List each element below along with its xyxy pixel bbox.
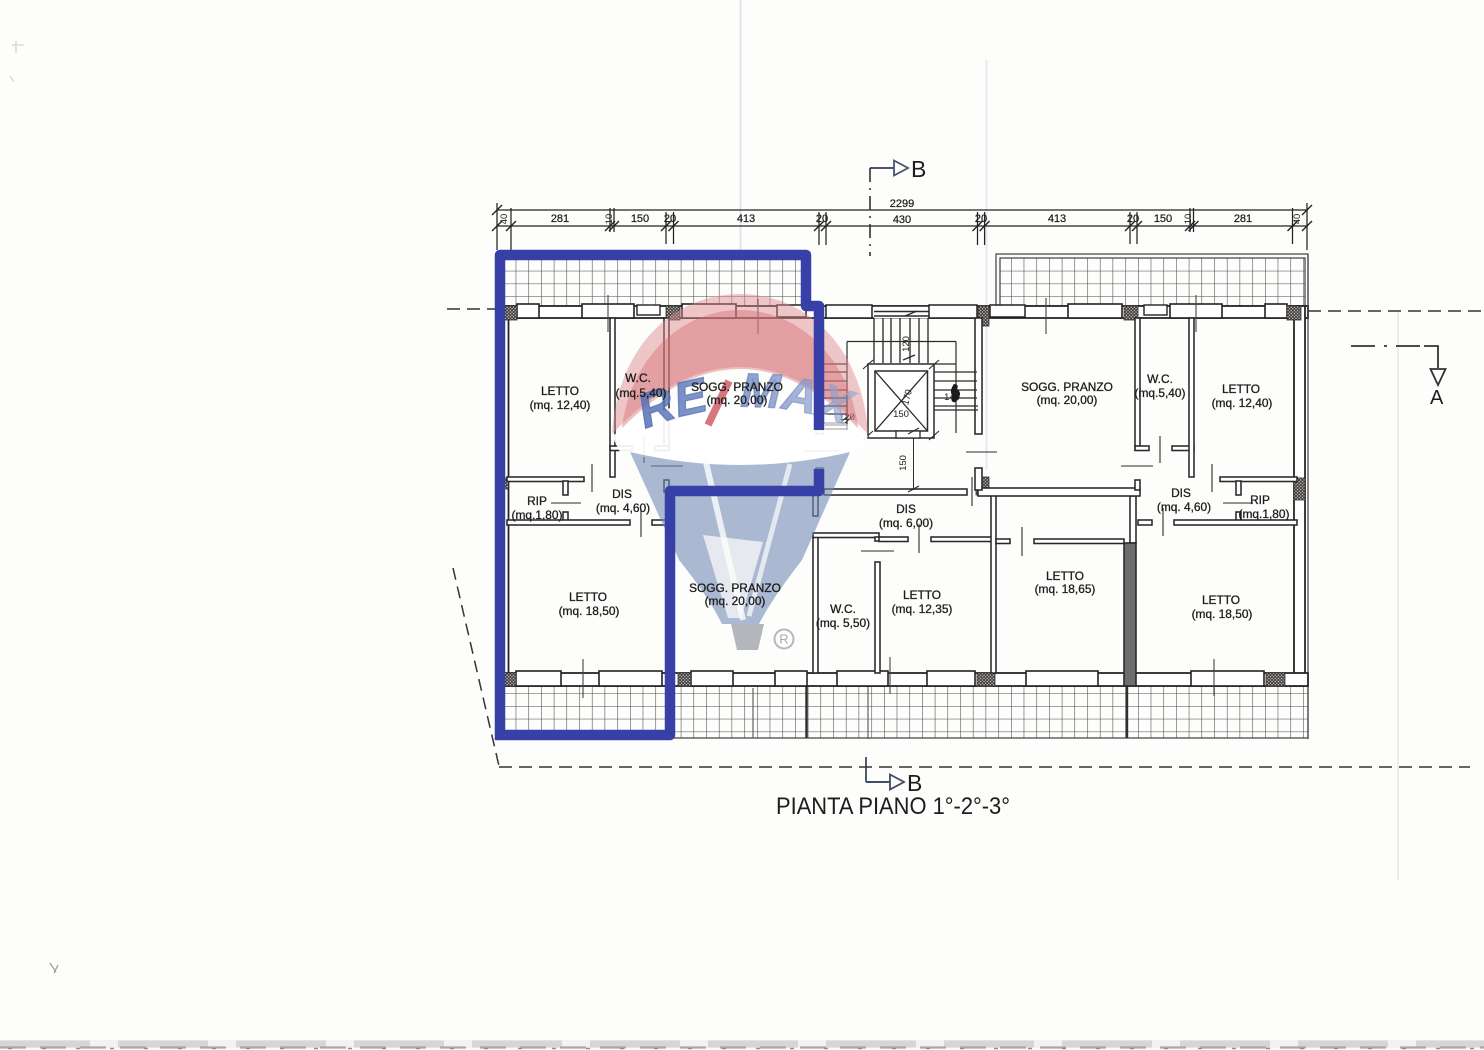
svg-text:(mq.1,80): (mq.1,80) [1239,507,1290,521]
svg-text:R: R [779,632,788,647]
svg-text:SOGG. PRANZO: SOGG. PRANZO [689,581,781,595]
svg-text:LETTO: LETTO [903,588,941,602]
svg-text:413: 413 [1048,213,1066,225]
svg-text:20: 20 [816,213,828,225]
svg-text:(mq.5,40): (mq.5,40) [1135,386,1186,400]
svg-text:10: 10 [604,214,615,225]
svg-text:SOGG. PRANZO: SOGG. PRANZO [1021,380,1113,394]
svg-text:(mq. 18,65): (mq. 18,65) [1035,582,1096,596]
svg-text:DIS: DIS [1171,486,1191,500]
svg-text:430: 430 [893,214,911,226]
svg-text:PIANTA PIANO 1°-2°-3°: PIANTA PIANO 1°-2°-3° [776,793,1010,820]
svg-text:10: 10 [1183,214,1194,225]
svg-text:(mq.1,80): (mq.1,80) [512,508,563,522]
svg-text:LETTO: LETTO [1222,382,1260,396]
svg-text:LETTO: LETTO [541,384,579,398]
svg-text:DIS: DIS [612,487,632,501]
svg-text:RIP: RIP [1250,493,1270,507]
svg-text:LETTO: LETTO [569,590,607,604]
svg-text:413: 413 [737,213,755,225]
svg-text:LETTO: LETTO [1046,569,1084,583]
svg-text:2299: 2299 [890,198,914,210]
svg-text:SOGG. PRANZO: SOGG. PRANZO [691,380,783,394]
svg-text:281: 281 [1234,213,1252,225]
svg-text:(mq. 6,00): (mq. 6,00) [879,516,933,530]
svg-text:(mq. 20,00): (mq. 20,00) [1037,393,1098,407]
svg-text:W.C.: W.C. [625,371,651,385]
svg-text:(mq. 12,40): (mq. 12,40) [1212,396,1273,410]
svg-text:LETTO: LETTO [1202,593,1240,607]
svg-text:281: 281 [551,213,569,225]
svg-text:(mq. 12,35): (mq. 12,35) [892,602,953,616]
svg-text:(mq. 20,00): (mq. 20,00) [707,393,768,407]
svg-text:20: 20 [975,213,987,225]
svg-text:A: A [1430,387,1444,409]
svg-text:(mq. 4,60): (mq. 4,60) [596,501,650,515]
svg-text:(mq. 18,50): (mq. 18,50) [1192,607,1253,621]
svg-text:120: 120 [901,336,912,352]
svg-text:150: 150 [898,455,909,471]
svg-text:40: 40 [1292,214,1303,225]
svg-text:150: 150 [631,213,649,225]
svg-text:150: 150 [893,409,909,420]
svg-text:W.C.: W.C. [830,602,856,616]
svg-text:(mq.5,40): (mq.5,40) [616,386,667,400]
svg-text:(mq. 4,60): (mq. 4,60) [1157,500,1211,514]
svg-text:20: 20 [664,213,676,225]
svg-text:W.C.: W.C. [1147,372,1173,386]
svg-text:(mq. 12,40): (mq. 12,40) [530,398,591,412]
svg-text:RIP: RIP [527,494,547,508]
svg-text:DIS: DIS [896,502,916,516]
svg-text:40: 40 [499,214,510,225]
svg-text:(mq. 20,00): (mq. 20,00) [705,594,766,608]
svg-text:(mq. 5,50): (mq. 5,50) [816,616,870,630]
svg-text:150: 150 [1154,213,1172,225]
svg-text:B: B [911,156,926,182]
svg-text:20: 20 [1127,213,1139,225]
svg-text:(mq. 18,50): (mq. 18,50) [559,604,620,618]
